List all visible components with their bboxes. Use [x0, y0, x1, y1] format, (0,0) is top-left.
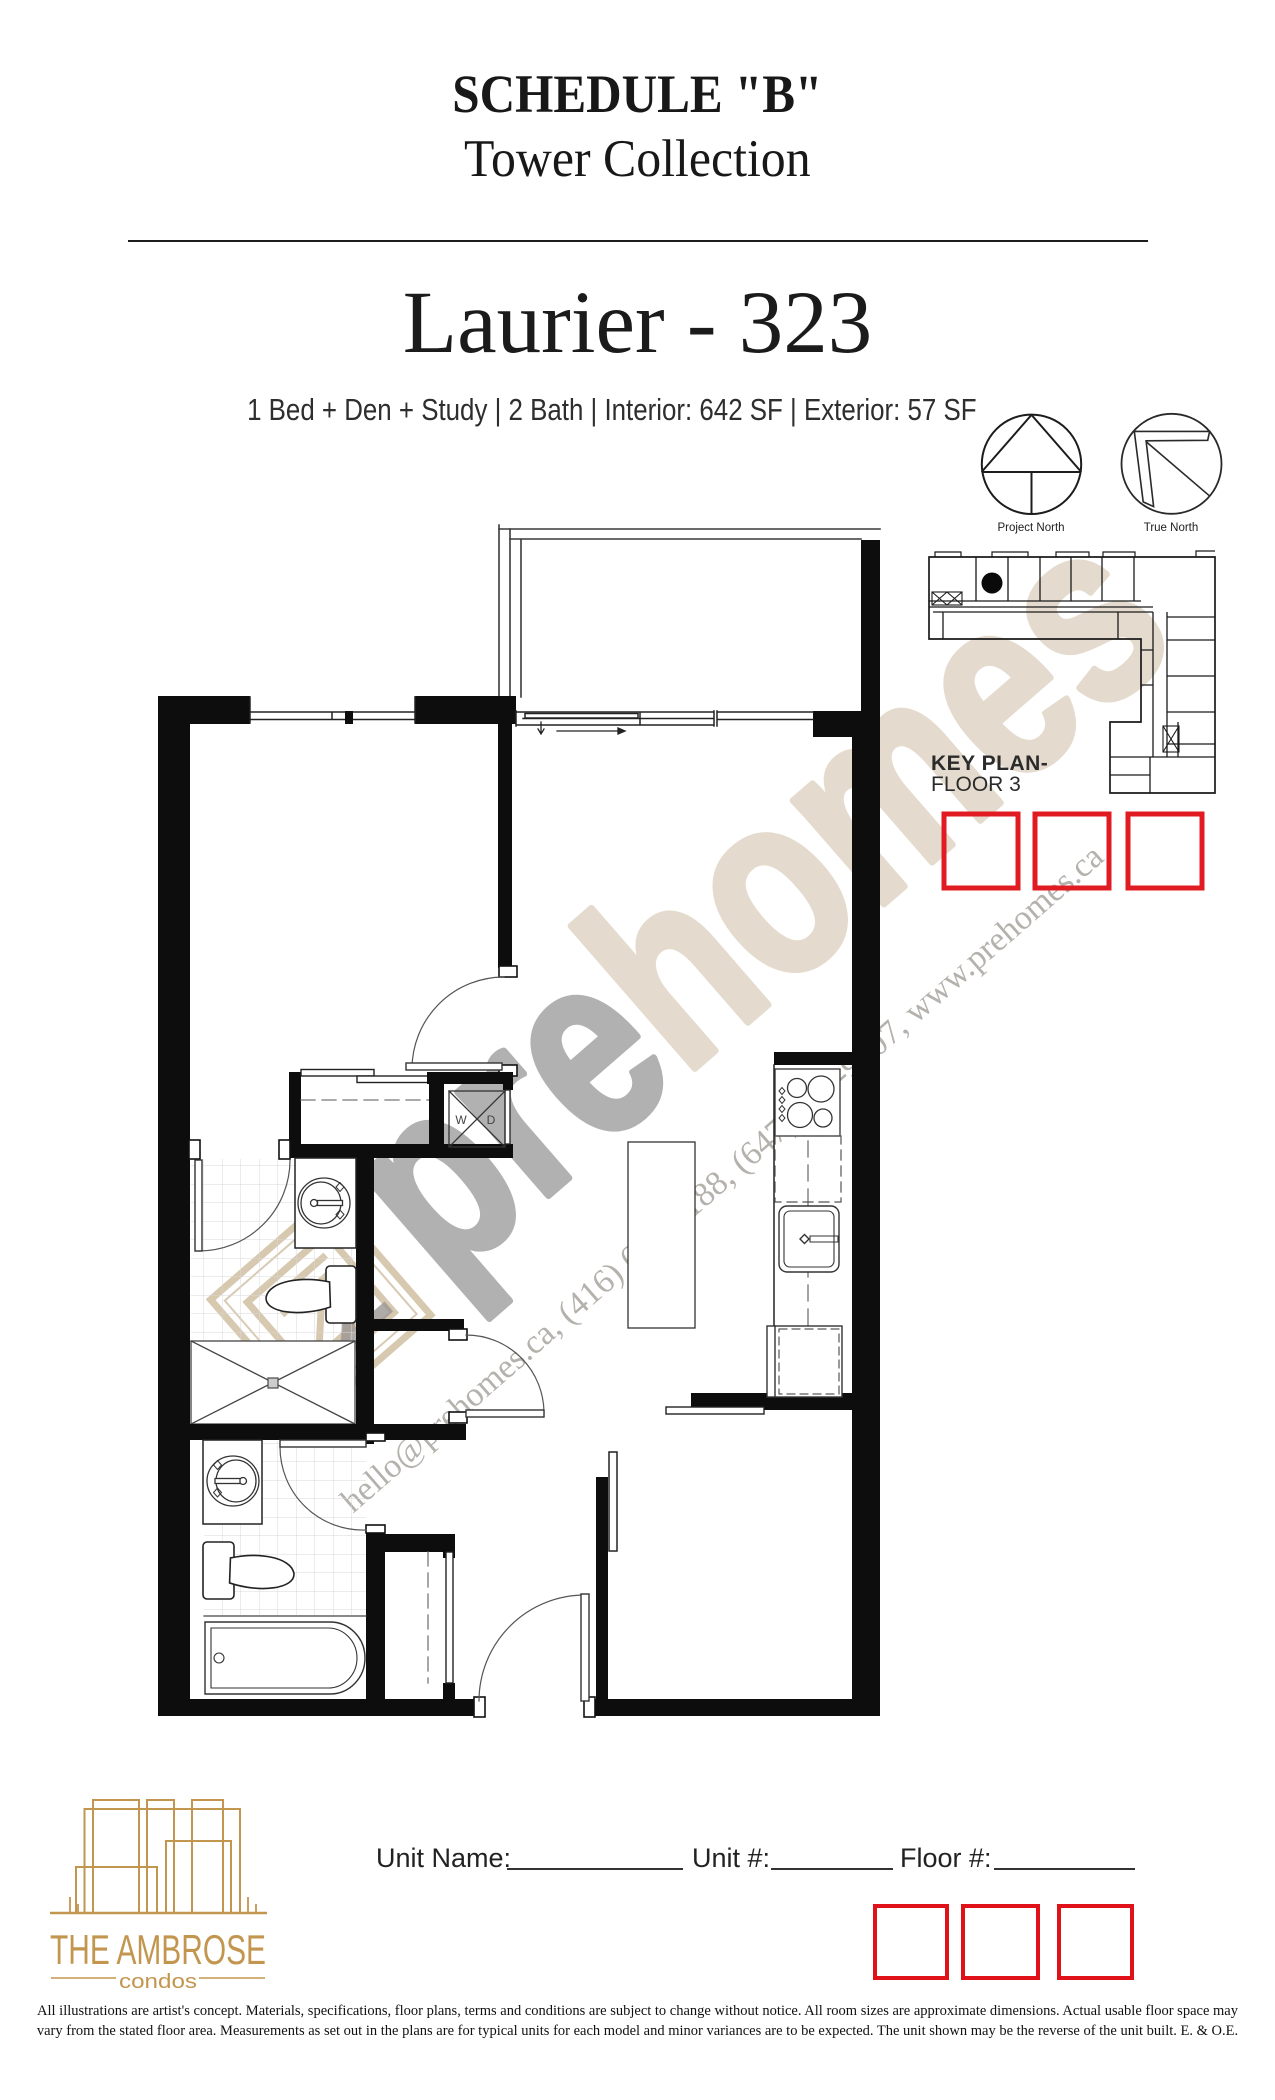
svg-text:W: W: [455, 1113, 467, 1127]
svg-text:Project North: Project North: [997, 522, 1064, 534]
svg-text:FLOOR 3: FLOOR 3: [931, 773, 1021, 796]
svg-text:condos: condos: [119, 1971, 197, 1993]
svg-text:THE AMBROSE: THE AMBROSE: [50, 1926, 266, 1973]
svg-text:KEY PLAN-: KEY PLAN-: [931, 752, 1048, 775]
svg-text:D: D: [487, 1113, 496, 1127]
svg-text:True North: True North: [1144, 522, 1199, 534]
